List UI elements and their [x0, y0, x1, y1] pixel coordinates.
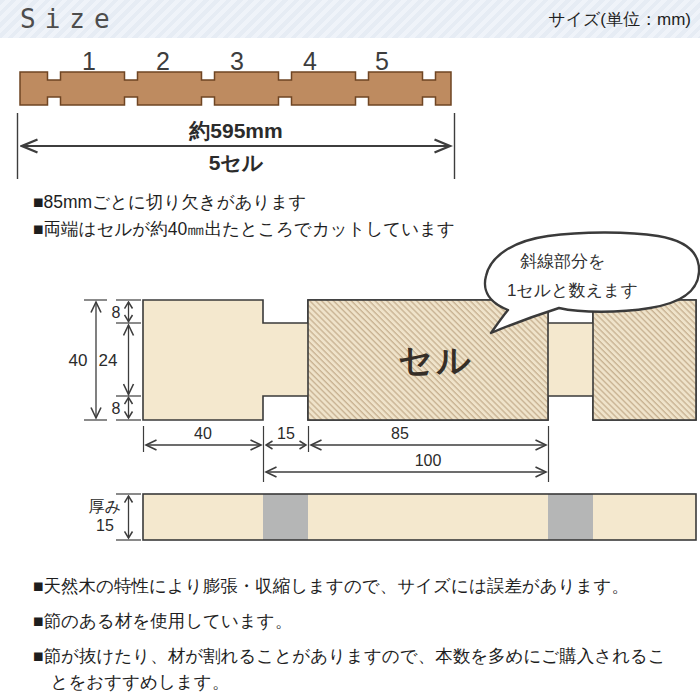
notched-wood-strip	[20, 72, 451, 105]
cell-number-label: 3	[230, 47, 244, 75]
cell-number-label: 5	[375, 47, 389, 75]
dim-label-cell-pitch: 100	[415, 452, 442, 469]
dim-label-notch-width: 15	[277, 425, 295, 442]
size-info-page: Size サイズ(単位：mm) 1 2 3 4 5 約595mm 5セル ■85…	[0, 0, 700, 700]
cell-number-label: 2	[156, 47, 170, 75]
size-header: Size サイズ(単位：mm)	[0, 0, 700, 38]
dim-label-middle: 24	[99, 351, 118, 370]
note-item: ■節のある材を使用しています。	[33, 608, 673, 634]
cell-label: セル	[398, 341, 474, 379]
cell-number-label: 4	[303, 47, 317, 75]
thickness-strip	[143, 494, 696, 540]
cross-section-diagram: セル 40 8 24 8 40 15 85 100	[0, 230, 700, 560]
cell-number-label: 1	[82, 47, 96, 75]
dim-label-total-height: 40	[69, 351, 88, 370]
bubble-line2: 1セルと数えます	[507, 281, 638, 300]
thickness-value: 15	[96, 517, 114, 534]
note-item: ■85mmごとに切り欠きがあります	[33, 189, 673, 215]
dim-label-top-notch: 8	[112, 304, 121, 321]
bubble-line1: 斜線部分を	[520, 252, 605, 271]
total-length-label: 約595mm	[188, 119, 282, 142]
thickness-label: 厚み	[89, 498, 121, 515]
unit-label: サイズ(単位：mm)	[548, 8, 691, 31]
notes-bottom: ■天然木の特性により膨張・収縮しますので、サイズには誤差があります。 ■節のある…	[33, 573, 673, 700]
dim-label-cell-body: 85	[391, 425, 409, 442]
notch-block	[548, 494, 593, 540]
top-length-diagram: 1 2 3 4 5 約595mm 5セル	[0, 45, 700, 185]
notch-block	[263, 494, 308, 540]
dim-label-end-length: 40	[194, 425, 212, 442]
page-title: Size	[20, 4, 119, 34]
note-item: ■天然木の特性により膨張・収縮しますので、サイズには誤差があります。	[33, 573, 673, 599]
note-item: ■節が抜けたり、材が割れることがありますので、本数を多めにご購入されることをおす…	[33, 643, 673, 695]
total-cells-label: 5セル	[209, 151, 264, 174]
dim-label-bottom-notch: 8	[112, 400, 121, 417]
cell-hatched-area-right	[593, 300, 696, 420]
